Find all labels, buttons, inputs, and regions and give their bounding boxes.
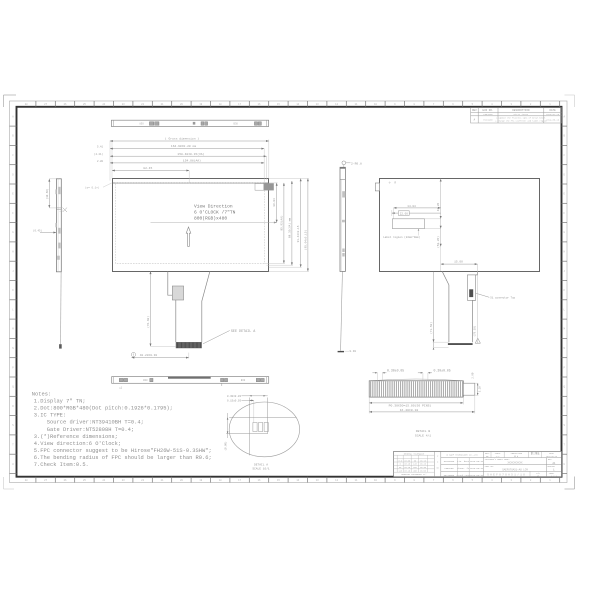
svg-text:PART NO:: PART NO: bbox=[485, 465, 494, 468]
svg-text:2.Dot:800*RGB*480(Dot pitch:0.: 2.Dot:800*RGB*480(Dot pitch:0.1926*0.179… bbox=[34, 406, 173, 412]
svg-text:ECN1908: ECN1908 bbox=[483, 118, 493, 121]
svg-text:S A E F 0 7 0 A 5 1 / 1 0: S A E F 0 7 0 A 5 1 / 1 0 bbox=[487, 473, 525, 476]
svg-text:Shawn. fu: Shawn. fu bbox=[457, 467, 470, 470]
svg-text:View Direction: View Direction bbox=[194, 204, 233, 210]
svg-text:CUSTOMER'S MODEL NAME:: CUSTOMER'S MODEL NAME: bbox=[485, 458, 510, 461]
svg-text:第三角法: 第三角法 bbox=[531, 451, 541, 455]
svg-text:P0.30X50=15.00(50 PINS): P0.30X50=15.00(50 PINS) bbox=[389, 403, 432, 407]
svg-text:0.30±0.05: 0.30±0.05 bbox=[387, 369, 404, 373]
svg-text:3.20: 3.20 bbox=[478, 386, 481, 393]
svg-text:3.(*)Reference dimensions;: 3.(*)Reference dimensions; bbox=[34, 434, 118, 440]
svg-text:PRE1908: PRE1908 bbox=[483, 113, 493, 116]
svg-text:4.View direction:6 O'Clock;: 4.View direction:6 O'Clock; bbox=[34, 441, 121, 447]
svg-text:DESCRIPTION: DESCRIPTION bbox=[512, 109, 530, 112]
svg-text:2019-08-16: 2019-08-16 bbox=[546, 118, 560, 121]
svg-text:158.40±0.15(VA): 158.40±0.15(VA) bbox=[177, 152, 204, 156]
svg-text:0.30±0.03: 0.30±0.03 bbox=[227, 395, 241, 398]
svg-text:2019-08-16: 2019-08-16 bbox=[470, 474, 484, 477]
svg-text:(σ= 0.1×): (σ= 0.1×) bbox=[85, 185, 100, 189]
svg-text:DETAIL A: DETAIL A bbox=[254, 463, 268, 466]
svg-text:1 / 1: 1 / 1 bbox=[551, 474, 558, 477]
svg-text:CHECKED: CHECKED bbox=[444, 467, 454, 470]
svg-text:800(RGB)x480: 800(RGB)x480 bbox=[194, 215, 227, 221]
svg-text:6 O'CLOCK /7"TN: 6 O'CLOCK /7"TN bbox=[194, 210, 236, 216]
svg-text:SCALE 10/1: SCALE 10/1 bbox=[252, 467, 270, 471]
svg-text:⊙ ◐: ⊙ ◐ bbox=[514, 455, 519, 458]
svg-text:6.The bending radius of FPC sh: 6.The bending radius of FPC should be la… bbox=[34, 455, 212, 461]
svg-text:mm: mm bbox=[437, 468, 439, 470]
svg-text:(95.04±0.15): (95.04±0.15) bbox=[303, 230, 307, 250]
svg-text:5.FPC connector suggest to be: 5.FPC connector suggest to be Hirose"FH2… bbox=[34, 448, 212, 454]
svg-text:◎ SAEF TECHNOLOGY CO.,LTD: ◎ SAEF TECHNOLOGY CO.,LTD bbox=[447, 454, 479, 457]
svg-text:REV.: REV. bbox=[548, 458, 553, 461]
svg-text:ANGULAR TOLERANCE ±1°: ANGULAR TOLERANCE ±1° bbox=[401, 473, 426, 476]
svg-text:91.44±0.15: 91.44±0.15 bbox=[297, 225, 300, 242]
svg-text:15.00: 15.00 bbox=[454, 260, 463, 263]
svg-text:Liu. benz: Liu. benz bbox=[457, 460, 470, 463]
svg-text:(0.90): (0.90) bbox=[224, 441, 227, 451]
svg-text:REV: REV bbox=[472, 109, 477, 112]
svg-text:ECN NO.: ECN NO. bbox=[483, 109, 494, 112]
svg-text:2.90: 2.90 bbox=[472, 372, 475, 379]
svg-text:88.32(VA) mm: 88.32(VA) mm bbox=[287, 218, 291, 238]
svg-text:APPROVED: APPROVED bbox=[444, 460, 455, 463]
svg-text:Label region (22mm*9mm): Label region (22mm*9mm) bbox=[383, 235, 420, 239]
svg-text:2019-08-16: 2019-08-16 bbox=[470, 460, 484, 463]
svg-text:(50.26): (50.26) bbox=[436, 236, 440, 248]
svg-text:0.30: 0.30 bbox=[350, 350, 357, 353]
svg-text:XXXXXXXXXX: XXXXXXXXXX bbox=[507, 462, 523, 465]
svg-text:(79.10): (79.10) bbox=[472, 325, 476, 336]
svg-text:(0.45): (0.45) bbox=[33, 230, 43, 233]
svg-text:GENERAL TOLERANCE: GENERAL TOLERANCE bbox=[404, 452, 425, 455]
svg-text:40.26: 40.26 bbox=[437, 202, 440, 211]
svg-text:( Gross dimension ): ( Gross dimension ) bbox=[165, 136, 199, 140]
svg-text:1.Display 7" TN;: 1.Display 7" TN; bbox=[34, 399, 86, 405]
svg-text:SEE DETAIL A: SEE DETAIL A bbox=[231, 330, 256, 334]
svg-text:40.20±0.30: 40.20±0.30 bbox=[140, 354, 158, 357]
svg-text:7.Check Item:0.5.: 7.Check Item:0.5. bbox=[34, 462, 89, 468]
svg-text:(76.60): (76.60) bbox=[146, 316, 150, 328]
svg-text:△1: △1 bbox=[119, 387, 123, 390]
svg-text:Gate Driver:NT52808H T=0.4;: Gate Driver:NT52808H T=0.4; bbox=[47, 427, 134, 433]
svg-text:2019-08-16: 2019-08-16 bbox=[470, 467, 484, 470]
svg-text:22.00: 22.00 bbox=[400, 212, 408, 215]
svg-text:14.04: 14.04 bbox=[407, 205, 416, 208]
svg-text:(4.21): (4.21) bbox=[94, 153, 104, 156]
svg-text:0.15±0.03: 0.15±0.03 bbox=[227, 400, 241, 403]
svg-text:DESIGNED: DESIGNED bbox=[444, 474, 455, 477]
svg-text:SCALE 4/1: SCALE 4/1 bbox=[415, 434, 431, 438]
svg-text:3.IC TYPE:: 3.IC TYPE: bbox=[34, 413, 66, 419]
svg-text:Frank.teng: Frank.teng bbox=[457, 474, 471, 477]
svg-text:B30: B30 bbox=[143, 379, 148, 382]
svg-text:DATE: DATE bbox=[549, 109, 556, 112]
svg-text:85.92(AA): 85.92(AA) bbox=[279, 215, 283, 230]
svg-text:Source driver:NT39410BH T=0.4;: Source driver:NT39410BH T=0.4; bbox=[47, 420, 144, 426]
svg-text:Notes:: Notes: bbox=[32, 392, 51, 398]
svg-text:39.84: 39.84 bbox=[273, 198, 276, 207]
svg-text:B30: B30 bbox=[241, 379, 246, 382]
svg-text:B30: B30 bbox=[234, 123, 239, 126]
svg-text:0.30±0.05: 0.30±0.05 bbox=[434, 369, 451, 373]
svg-text:DETAIL B: DETAIL B bbox=[416, 430, 431, 433]
svg-text:(30.50): (30.50) bbox=[46, 188, 49, 199]
svg-text:82.45: 82.45 bbox=[143, 167, 152, 170]
svg-text:SAEF070A51—A0 LCM: SAEF070A51—A0 LCM bbox=[502, 468, 528, 471]
svg-text:51 connector Top: 51 connector Top bbox=[490, 297, 515, 300]
svg-text:164.90±0.20 mm: 164.90±0.20 mm bbox=[171, 145, 196, 148]
svg-text:2019-07-20: 2019-07-20 bbox=[546, 113, 560, 116]
svg-text:830: 830 bbox=[139, 123, 144, 126]
svg-text:5.41: 5.41 bbox=[97, 146, 104, 149]
svg-text:2.80: 2.80 bbox=[97, 160, 104, 163]
svg-text:2-R0.8: 2-R0.8 bbox=[351, 162, 362, 165]
svg-text:(71.50): (71.50) bbox=[429, 322, 433, 334]
svg-text:154.08(AA): 154.08(AA) bbox=[183, 159, 201, 163]
svg-text:2.Change the FPC stiffener and: 2.Change the FPC stiffener and label reg… bbox=[495, 119, 547, 122]
svg-text:16.40±0.10: 16.40±0.10 bbox=[400, 408, 419, 412]
